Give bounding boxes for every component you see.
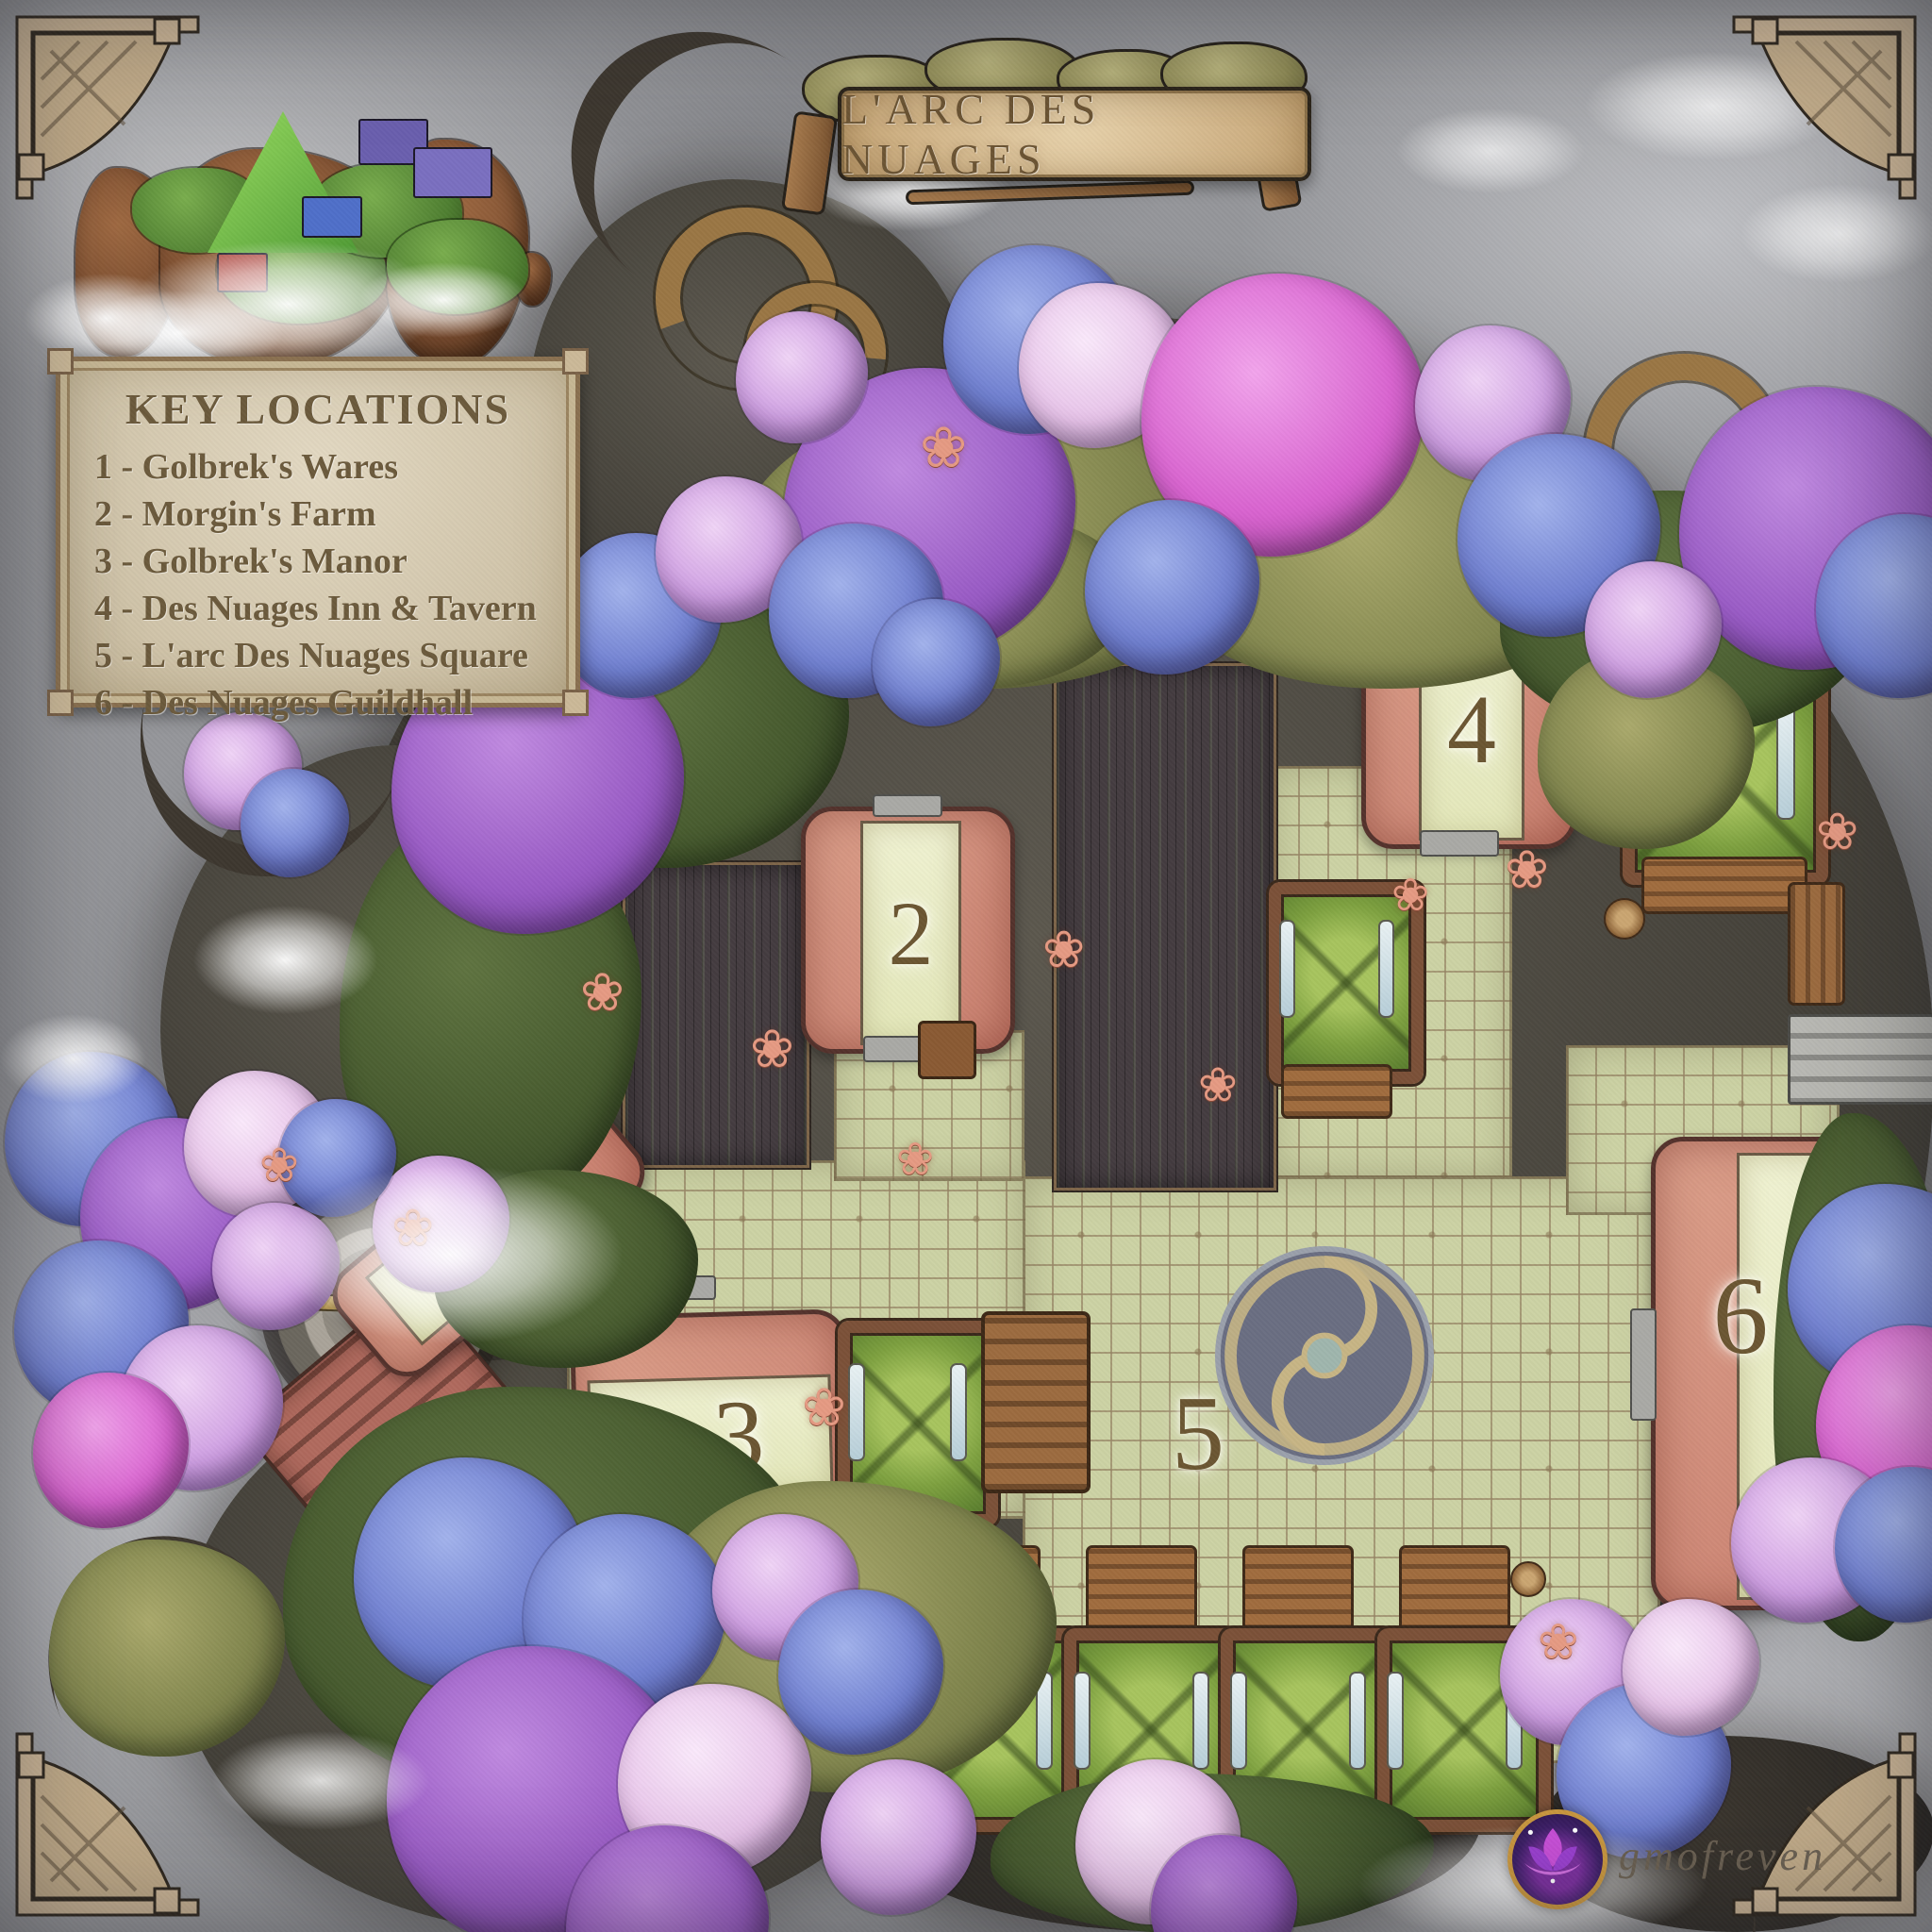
legend-item: 1 - Golbrek's Wares	[60, 443, 575, 491]
building-2-floor: 2	[860, 821, 961, 1045]
flower-icon: ❀	[896, 1137, 934, 1182]
cloud	[1396, 108, 1585, 193]
flower-icon: ❀	[1042, 924, 1085, 975]
bench	[1641, 857, 1807, 914]
corner-flourish	[1730, 13, 1919, 202]
building-number: 2	[863, 824, 958, 1042]
title-banner: L'ARC DES NUAGES	[770, 38, 1312, 203]
legend-item: 5 - L'arc Des Nuages Square	[60, 632, 575, 679]
island-house	[413, 147, 492, 198]
legend-item: 3 - Golbrek's Manor	[60, 538, 575, 585]
trough	[1776, 703, 1795, 820]
crate	[918, 1021, 976, 1079]
flower-icon: ❀	[920, 420, 967, 476]
farm-field	[1054, 663, 1276, 1191]
porch	[1630, 1308, 1657, 1421]
legend-corner	[47, 348, 74, 375]
map-canvas: 1 2 3 4 5 6	[0, 0, 1932, 1932]
flower-icon: ❀	[580, 967, 625, 1020]
cloud	[212, 1731, 429, 1830]
island-house	[302, 196, 362, 238]
trough	[950, 1363, 967, 1461]
flower-icon: ❀	[1538, 1618, 1579, 1667]
trough	[848, 1363, 865, 1461]
bench	[1281, 1064, 1392, 1119]
flower-icon: ❀	[750, 1024, 794, 1076]
plaza-number: 5	[1141, 1373, 1255, 1495]
trough	[1279, 920, 1295, 1018]
tree-trunk-decoration	[781, 110, 838, 215]
farm-field	[623, 862, 809, 1168]
corner-flourish	[13, 1730, 202, 1919]
cloud	[278, 1165, 623, 1344]
legend-item: 4 - Des Nuages Inn & Tavern	[60, 585, 575, 632]
flower-icon: ❀	[259, 1141, 299, 1189]
artist-name: gmofreven	[1619, 1832, 1826, 1880]
flower-icon: ❀	[802, 1382, 846, 1435]
trough	[1378, 920, 1394, 1018]
flower-icon: ❀	[1198, 1061, 1238, 1108]
cart	[981, 1311, 1091, 1493]
trough	[1074, 1672, 1091, 1770]
bench	[1242, 1545, 1354, 1632]
trough	[1387, 1672, 1404, 1770]
corner-flourish	[1730, 1730, 1919, 1919]
log	[1604, 898, 1645, 940]
corner-flourish	[13, 13, 202, 202]
trough	[1192, 1672, 1209, 1770]
legend-title: KEY LOCATIONS	[60, 361, 575, 434]
legend-corner	[47, 690, 74, 716]
legend-item: 6 - Des Nuages Guildhall	[60, 679, 575, 726]
bench	[1086, 1545, 1197, 1632]
trough	[1349, 1672, 1366, 1770]
lotus-icon	[1507, 1809, 1607, 1909]
porch	[1420, 830, 1499, 857]
porch	[873, 794, 942, 817]
trough	[1230, 1672, 1247, 1770]
stairs	[1788, 1014, 1932, 1105]
title-plaque: L'ARC DES NUAGES	[838, 87, 1311, 181]
legend-panel: KEY LOCATIONS 1 - Golbrek's Wares 2 - Mo…	[56, 357, 580, 708]
legend-corner	[562, 348, 589, 375]
legend-item: 2 - Morgin's Farm	[60, 491, 575, 538]
flower-icon: ❀	[1391, 873, 1429, 918]
flower-icon: ❀	[1505, 844, 1549, 897]
log	[1510, 1561, 1546, 1597]
bench	[1399, 1545, 1510, 1632]
cloud	[193, 906, 377, 1014]
flower-icon: ❀	[1816, 807, 1858, 858]
bench	[1788, 882, 1845, 1006]
map-title: L'ARC DES NUAGES	[841, 91, 1307, 177]
cloud	[0, 1014, 146, 1104]
legend-corner	[562, 690, 589, 716]
building-2: 2	[801, 807, 1015, 1054]
